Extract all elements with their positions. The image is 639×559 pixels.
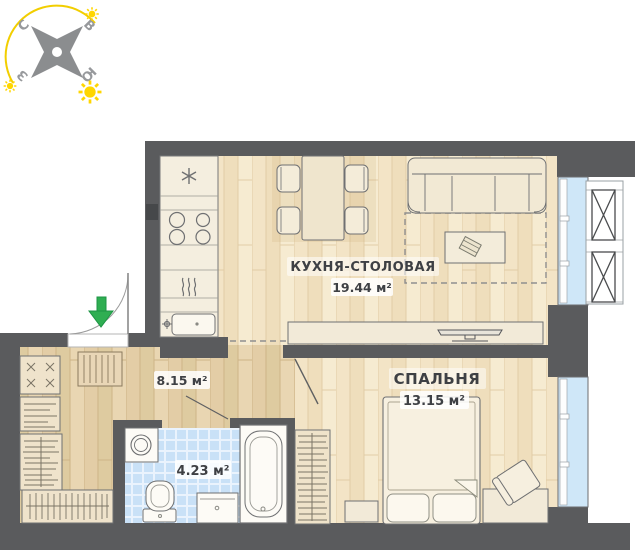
wardrobe-bedroom [295, 430, 330, 524]
wall-niche-mark [146, 204, 158, 220]
pillow [433, 494, 476, 522]
pillow [387, 494, 429, 522]
sofa [408, 158, 546, 213]
floor-plan-canvas: С В З Ю [0, 0, 639, 559]
wardrobe-hall-bottom [22, 490, 113, 523]
hall-cabinet [20, 397, 60, 431]
dining-table [302, 156, 344, 240]
wardrobe-hall-tall [20, 434, 62, 490]
compass-center [52, 47, 62, 57]
chair [345, 165, 368, 192]
washing-machine [125, 428, 158, 462]
wall-hall-top-right [128, 333, 160, 347]
bathroom-door-gap-floor [162, 420, 230, 428]
bedroom-label: СПАЛЬНЯ [394, 370, 481, 388]
entrance-threshold [68, 334, 128, 347]
bathroom-area: 4.23 м² [177, 464, 230, 479]
vanity-sink [197, 493, 238, 523]
compass-south: Ю [77, 63, 98, 84]
compass-rose: С В З Ю [4, 6, 102, 104]
sun-icon [4, 80, 17, 93]
wall-bedroom-top [283, 345, 558, 358]
entrance-arrow-icon [89, 297, 113, 327]
kitchen-window [558, 177, 588, 305]
wall-outer-left [0, 333, 20, 550]
wall-bathroom-top-left [113, 420, 162, 428]
shoe-cabinet [20, 356, 60, 394]
chair [345, 207, 368, 234]
tv-console [288, 322, 543, 344]
bedroom-door-gap-floor [283, 358, 295, 418]
doormat [78, 352, 122, 386]
coffee-table [445, 232, 505, 263]
ac-basket-icon [592, 190, 615, 240]
ac-basket-frame [586, 181, 623, 304]
bedroom-window [558, 377, 588, 507]
kitchen-area: 19.44 м² [332, 280, 392, 295]
wall-top-right-block [557, 141, 635, 177]
wall-bathroom-left [113, 420, 125, 523]
floor-plan: С В З Ю [0, 0, 639, 559]
toilet [143, 481, 176, 522]
tv-icon [438, 330, 502, 335]
hallway-area: 8.15 м² [157, 373, 208, 388]
compass-west: З [14, 66, 31, 83]
kitchen-label: КУХНЯ-СТОЛОВАЯ [290, 260, 435, 275]
vent-shaft-block [160, 337, 228, 358]
chair [277, 207, 300, 234]
sun-icon [85, 7, 99, 21]
wall-right-bottom-block [548, 507, 588, 527]
compass-north: С [15, 17, 32, 34]
bed [383, 397, 480, 524]
chair [277, 165, 300, 192]
wall-kitchen-left [145, 141, 160, 347]
kitchen-counter [160, 156, 218, 337]
wall-right-mid-block [548, 305, 588, 377]
bedroom-area: 13.15 м² [403, 394, 465, 409]
sun-icon [79, 81, 102, 104]
nightstand [345, 501, 378, 522]
entrance-door [68, 273, 128, 347]
compass-east: В [80, 17, 98, 35]
ac-basket-icon [592, 252, 615, 302]
wall-bottom [0, 523, 630, 550]
bathtub [240, 425, 287, 523]
